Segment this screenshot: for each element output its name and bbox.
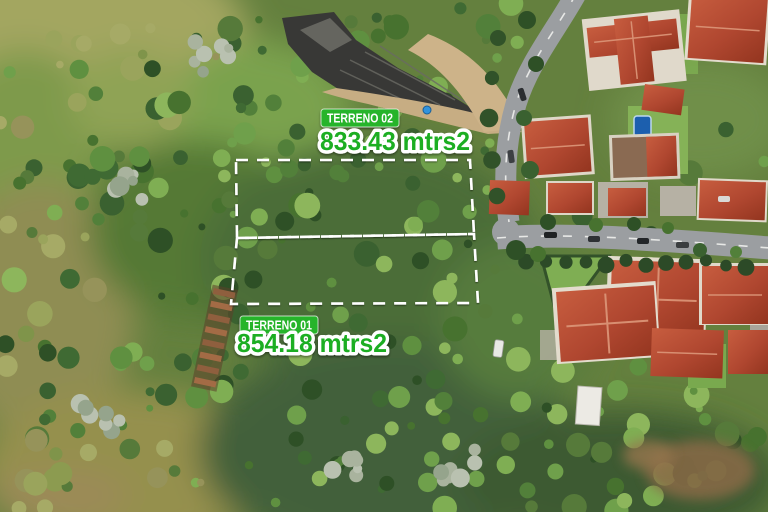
house (608, 188, 646, 216)
house (552, 281, 661, 364)
house (609, 133, 681, 181)
house (699, 263, 768, 325)
blue-barrel (423, 106, 431, 114)
house (697, 178, 768, 222)
terreno-02-tag-label: TERRENO 02 (327, 112, 393, 126)
house (546, 181, 594, 215)
terreno-02-area-label: 833.43 mtrs2 (320, 126, 470, 156)
house (650, 328, 724, 378)
car (637, 238, 649, 244)
car (544, 232, 557, 238)
car (718, 196, 730, 202)
house (582, 9, 687, 91)
house (641, 84, 684, 115)
aerial-photo-canvas: TERRENO 02 833.43 mtrs2 TERRENO 01 854.1… (0, 0, 768, 512)
car (588, 236, 600, 242)
car (676, 242, 689, 248)
white-van (493, 340, 504, 358)
white-roof-structure (575, 386, 602, 426)
aerial-photo: TERRENO 02 833.43 mtrs2 TERRENO 01 854.1… (0, 0, 768, 512)
house (728, 330, 768, 374)
house (684, 0, 768, 65)
terreno-01-area-label: 854.18 mtrs2 (237, 328, 387, 358)
